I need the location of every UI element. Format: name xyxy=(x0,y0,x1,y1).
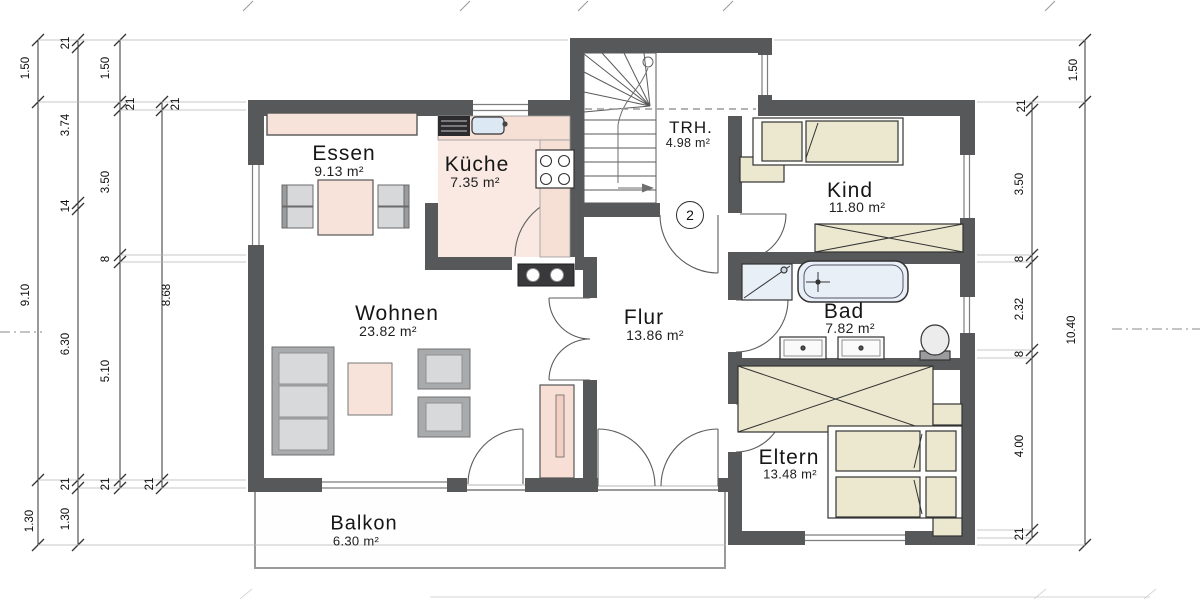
room-area-kind: 11.80 m² xyxy=(829,199,886,215)
eltern-mattress-2 xyxy=(836,477,920,517)
dim-label: 6.30 xyxy=(60,333,72,355)
wall-kueche-bottom xyxy=(425,257,512,270)
wall-eltern-left-b xyxy=(728,452,742,545)
bathtub xyxy=(798,261,908,302)
armchair-1 xyxy=(418,349,470,389)
wall-trh-flur xyxy=(583,203,660,217)
dim-label: 14 xyxy=(60,200,72,213)
dim-label: 3.50 xyxy=(1014,173,1026,195)
window-eltern-bottom xyxy=(805,531,905,545)
eltern-mattress-1 xyxy=(836,431,920,471)
wall-bad-left-b xyxy=(728,352,742,358)
room-area-kueche: 7.35 m² xyxy=(450,174,500,190)
dim-label: 1.30 xyxy=(60,508,72,530)
nightstand-2 xyxy=(933,517,962,536)
dim-label: 1.30 xyxy=(24,510,36,532)
dim-label: 9.10 xyxy=(20,284,32,306)
room-area-essen: 9.13 m² xyxy=(314,163,364,179)
sideboard xyxy=(267,113,417,135)
room-area-trh: 4.98 m² xyxy=(666,136,710,150)
wall-stairwell-top xyxy=(570,38,772,53)
coffee-table xyxy=(348,363,392,415)
balcony-outline xyxy=(255,490,725,568)
sofa xyxy=(272,347,334,455)
dim-ticks-top-partial xyxy=(243,1,1055,11)
kind-pillow xyxy=(762,122,802,161)
wall-right-upper xyxy=(960,100,975,155)
dim-label: 3.50 xyxy=(100,171,112,193)
nightstand-1 xyxy=(933,404,962,425)
dim-label: 21 xyxy=(1014,528,1026,541)
door-wohnen-balkon xyxy=(468,429,523,484)
dim-label: 8.68 xyxy=(161,284,173,306)
kind-wardrobe xyxy=(815,224,963,252)
armchair-2 xyxy=(418,397,470,437)
window-kind-right xyxy=(960,155,975,218)
window-essen-left xyxy=(248,165,264,245)
eltern-pillow-1 xyxy=(926,431,956,471)
furniture-wohnen xyxy=(272,347,574,478)
dim-label: 21 xyxy=(60,37,72,50)
dim-label: 8 xyxy=(100,256,112,262)
dim-label: 8 xyxy=(1014,351,1026,357)
flur-dresser xyxy=(518,264,574,286)
wall-bottom-b xyxy=(525,478,598,492)
faucet xyxy=(502,121,507,126)
kitchen-sink xyxy=(472,117,504,134)
eltern-wardrobe xyxy=(738,366,933,432)
washbasin-2 xyxy=(838,337,884,359)
dim-label: 8 xyxy=(1014,256,1026,262)
door-double-flur-balkon xyxy=(598,429,718,486)
room-area-flur: 13.86 m² xyxy=(626,327,684,343)
kind-mattress xyxy=(806,121,898,162)
dim-label: 21 xyxy=(170,98,182,111)
door-double-wohnen-flur xyxy=(549,298,590,380)
dim-label: 21 xyxy=(60,478,72,491)
dim-label: 21 xyxy=(100,478,112,491)
room-label-balkon: Balkon xyxy=(330,513,397,536)
window-bad-right xyxy=(960,297,975,333)
dim-label: 3.74 xyxy=(60,114,72,136)
wall-wohnen-flur-b xyxy=(583,380,597,478)
dim-label: 21 xyxy=(144,478,156,491)
dim-label: 5.10 xyxy=(100,360,112,382)
dim-label: 21 xyxy=(125,98,137,111)
room-area-wohnen: 23.82 m² xyxy=(359,323,417,339)
dim-label: 1.50 xyxy=(20,57,32,79)
wall-essen-kueche xyxy=(425,203,438,270)
dim-line-bottom-partial xyxy=(240,589,1156,599)
dim-label: 1.50 xyxy=(1068,59,1080,81)
floor-number-badge: 2 xyxy=(676,201,704,229)
tall-cabinet xyxy=(540,385,574,478)
dim-label: 4.00 xyxy=(1014,435,1026,457)
shower xyxy=(742,264,792,300)
room-area-balkon: 6.30 m² xyxy=(333,534,379,549)
wall-bad-left xyxy=(728,264,742,300)
room-label-trh: TRH. xyxy=(669,118,713,138)
toilet xyxy=(920,325,950,360)
stove xyxy=(536,150,574,188)
wall-stairwell-right-upper xyxy=(758,38,772,55)
washbasin-1 xyxy=(780,337,826,359)
floor-plan: Essen 9.13 m² Küche 7.35 m² TRH. 4.98 m²… xyxy=(0,0,1200,600)
wall-bottom-a xyxy=(248,478,322,492)
dim-label: 2.32 xyxy=(1014,298,1026,320)
window-kueche-top xyxy=(473,100,528,116)
room-area-bad: 7.82 m² xyxy=(825,320,875,336)
floor-number: 2 xyxy=(686,207,694,223)
section-lines xyxy=(0,329,1200,332)
wall-bottom-pier xyxy=(447,478,467,492)
wall-top-right xyxy=(758,100,975,116)
eltern-pillow-2 xyxy=(926,477,956,517)
dining-table xyxy=(318,180,373,235)
wall-left-upper xyxy=(248,100,264,165)
dim-label: 10.40 xyxy=(1066,316,1078,345)
window-wohnen-balkon xyxy=(322,478,447,492)
dim-label: 21 xyxy=(1016,100,1028,113)
wall-left-lower xyxy=(248,245,264,492)
window-stairwell-right xyxy=(758,55,772,95)
room-area-eltern: 13.48 m² xyxy=(763,467,817,482)
wall-wohnen-flur-a xyxy=(583,257,597,298)
dim-label: 1.50 xyxy=(100,57,112,79)
wall-stairwell-left xyxy=(570,38,584,257)
